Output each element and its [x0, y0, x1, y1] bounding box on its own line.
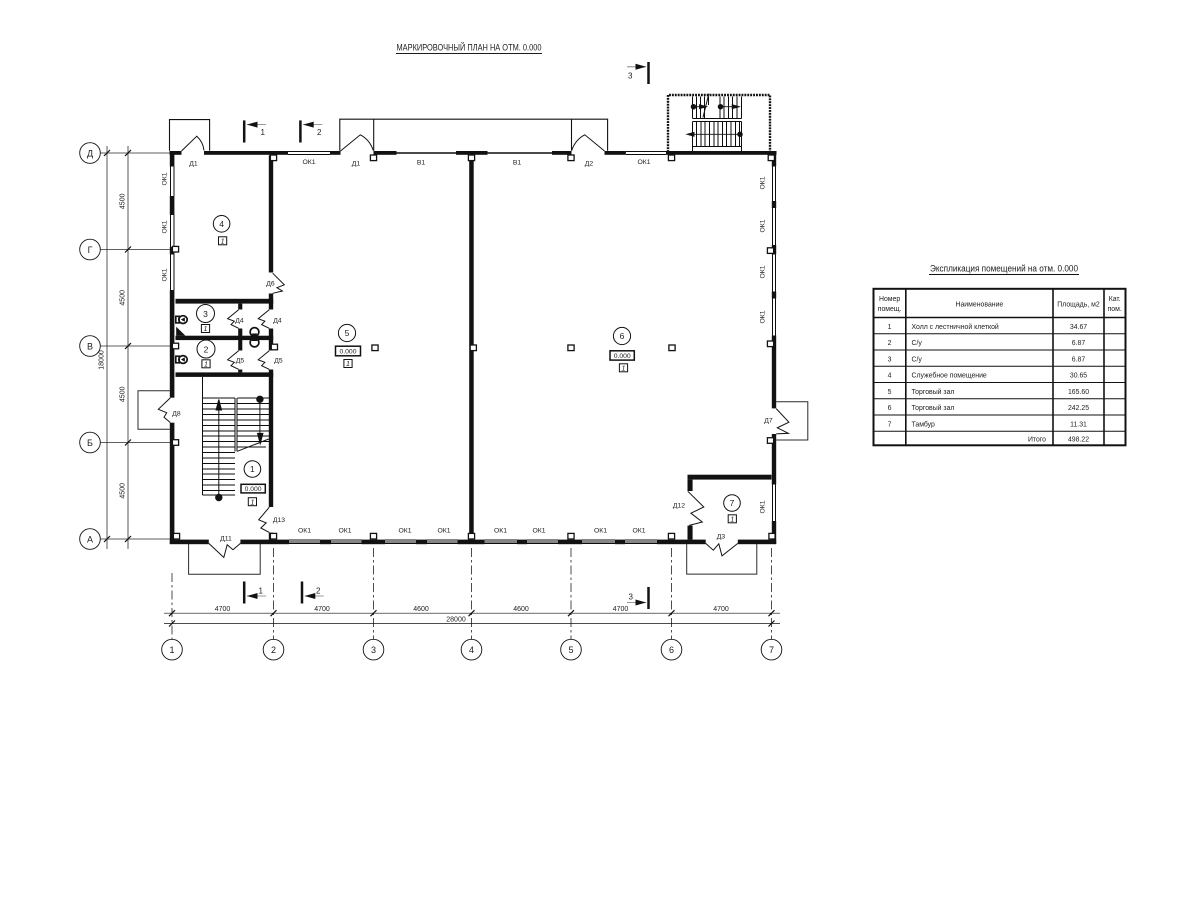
- svg-text:Д2: Д2: [585, 161, 594, 168]
- svg-text:6.87: 6.87: [1072, 356, 1086, 363]
- svg-text:А: А: [87, 534, 93, 544]
- svg-text:Д7: Д7: [764, 418, 773, 425]
- svg-text:ОК1: ОК1: [162, 220, 169, 233]
- svg-text:С/у: С/у: [912, 356, 923, 363]
- svg-text:2: 2: [204, 344, 209, 354]
- svg-text:Д1: Д1: [189, 161, 198, 168]
- svg-text:4700: 4700: [314, 606, 330, 613]
- svg-text:4700: 4700: [215, 606, 231, 613]
- svg-text:1: 1: [204, 361, 208, 368]
- svg-text:3: 3: [629, 593, 634, 602]
- svg-text:помещ.: помещ.: [878, 306, 902, 313]
- svg-text:ОК1: ОК1: [532, 528, 545, 535]
- svg-text:ОК1: ОК1: [494, 528, 507, 535]
- svg-text:4600: 4600: [513, 606, 529, 613]
- svg-text:ОК1: ОК1: [162, 172, 169, 185]
- svg-text:Площадь, м2: Площадь, м2: [1057, 302, 1100, 309]
- svg-text:ОК1: ОК1: [338, 528, 351, 535]
- svg-text:Торговый зал: Торговый зал: [912, 404, 955, 412]
- svg-text:Д11: Д11: [220, 535, 232, 542]
- svg-text:Номер: Номер: [879, 296, 900, 303]
- svg-text:Тамбур: Тамбур: [912, 420, 936, 428]
- svg-text:ОК1: ОК1: [298, 528, 311, 535]
- svg-text:1: 1: [888, 324, 892, 331]
- svg-text:Д4: Д4: [235, 318, 244, 325]
- svg-text:Экспликация помещений на отм.: Экспликация помещений на отм. 0.000: [930, 264, 1078, 274]
- svg-text:18000: 18000: [99, 350, 106, 370]
- svg-text:1: 1: [169, 645, 174, 655]
- svg-text:Д4: Д4: [273, 318, 282, 325]
- svg-text:11.31: 11.31: [1070, 421, 1087, 428]
- svg-text:Д5: Д5: [236, 358, 245, 365]
- svg-text:3: 3: [628, 72, 633, 81]
- svg-text:0.000: 0.000: [245, 486, 262, 493]
- svg-text:5: 5: [888, 389, 892, 396]
- svg-text:7: 7: [730, 498, 735, 508]
- svg-text:ОК1: ОК1: [637, 159, 650, 166]
- svg-text:1: 1: [622, 365, 626, 372]
- svg-text:2: 2: [317, 128, 322, 137]
- svg-text:34.67: 34.67: [1070, 324, 1087, 331]
- svg-text:ОК1: ОК1: [437, 528, 450, 535]
- svg-text:Д12: Д12: [673, 503, 685, 510]
- svg-text:1: 1: [250, 464, 255, 474]
- svg-text:1: 1: [204, 326, 208, 333]
- svg-text:4700: 4700: [613, 606, 629, 613]
- svg-text:МАРКИРОВОЧНЫЙ ПЛАН НА ОТМ. 0.0: МАРКИРОВОЧНЫЙ ПЛАН НА ОТМ. 0.000: [397, 42, 542, 53]
- svg-text:4500: 4500: [120, 290, 127, 306]
- svg-text:ОК1: ОК1: [632, 528, 645, 535]
- svg-text:Кат.: Кат.: [1109, 296, 1121, 303]
- svg-text:28000: 28000: [446, 617, 466, 624]
- svg-text:Д8: Д8: [172, 411, 181, 418]
- svg-text:Д1: Д1: [352, 161, 361, 168]
- svg-text:Б: Б: [87, 438, 93, 448]
- svg-text:498.22: 498.22: [1068, 437, 1089, 444]
- svg-text:30.65: 30.65: [1070, 373, 1087, 380]
- svg-text:Д3: Д3: [717, 534, 726, 541]
- svg-text:4600: 4600: [413, 606, 429, 613]
- svg-text:6: 6: [669, 645, 674, 655]
- svg-text:7: 7: [888, 421, 892, 428]
- svg-text:5: 5: [345, 328, 350, 338]
- svg-text:Итого: Итого: [1028, 437, 1046, 444]
- svg-text:1: 1: [730, 516, 734, 523]
- svg-text:ОК1: ОК1: [162, 268, 169, 281]
- svg-text:С/у: С/у: [912, 340, 923, 347]
- svg-text:1: 1: [261, 128, 266, 137]
- svg-text:Д: Д: [87, 148, 93, 158]
- svg-text:Д13: Д13: [273, 517, 285, 524]
- svg-text:165.60: 165.60: [1068, 389, 1089, 396]
- svg-text:Холл с лестничной клеткой: Холл с лестничной клеткой: [912, 323, 999, 331]
- svg-text:ОК1: ОК1: [594, 528, 607, 535]
- svg-text:6: 6: [888, 405, 892, 412]
- svg-text:В: В: [87, 341, 93, 351]
- svg-text:2: 2: [316, 587, 321, 596]
- svg-text:ОК1: ОК1: [302, 159, 315, 166]
- svg-text:ОК1: ОК1: [398, 528, 411, 535]
- svg-text:Г: Г: [88, 245, 93, 255]
- svg-text:1: 1: [221, 238, 225, 245]
- svg-text:2: 2: [888, 340, 892, 347]
- svg-text:242.25: 242.25: [1068, 405, 1089, 412]
- svg-text:ОК1: ОК1: [760, 310, 767, 323]
- svg-text:4500: 4500: [120, 483, 127, 499]
- svg-text:4700: 4700: [713, 606, 729, 613]
- svg-text:4: 4: [469, 645, 474, 655]
- svg-text:ОК1: ОК1: [760, 500, 767, 513]
- svg-text:ОК1: ОК1: [760, 176, 767, 189]
- svg-text:4: 4: [888, 373, 892, 380]
- svg-text:4500: 4500: [120, 386, 127, 402]
- svg-text:ОК1: ОК1: [760, 219, 767, 232]
- svg-text:В1: В1: [417, 160, 426, 167]
- svg-text:ОК1: ОК1: [760, 265, 767, 278]
- svg-text:1: 1: [259, 587, 264, 596]
- svg-text:Д6: Д6: [266, 281, 275, 288]
- svg-text:Д5: Д5: [274, 358, 283, 365]
- svg-text:0.000: 0.000: [339, 349, 356, 356]
- svg-text:4500: 4500: [120, 193, 127, 209]
- svg-text:6.87: 6.87: [1072, 340, 1086, 347]
- svg-text:пом.: пом.: [1108, 306, 1122, 313]
- svg-text:2: 2: [271, 645, 276, 655]
- svg-text:3: 3: [371, 645, 376, 655]
- svg-text:5: 5: [568, 645, 573, 655]
- svg-text:Торговый зал: Торговый зал: [912, 388, 955, 396]
- svg-text:Служебное помещение: Служебное помещение: [912, 372, 987, 380]
- svg-text:3: 3: [203, 309, 208, 319]
- svg-text:7: 7: [769, 645, 774, 655]
- svg-text:1: 1: [250, 499, 254, 506]
- svg-text:Наименование: Наименование: [956, 302, 1004, 309]
- svg-text:В1: В1: [513, 160, 522, 167]
- svg-text:6: 6: [620, 331, 625, 341]
- svg-text:1: 1: [346, 361, 350, 368]
- svg-text:0.000: 0.000: [614, 353, 631, 360]
- svg-text:3: 3: [888, 356, 892, 363]
- svg-text:4: 4: [219, 219, 224, 229]
